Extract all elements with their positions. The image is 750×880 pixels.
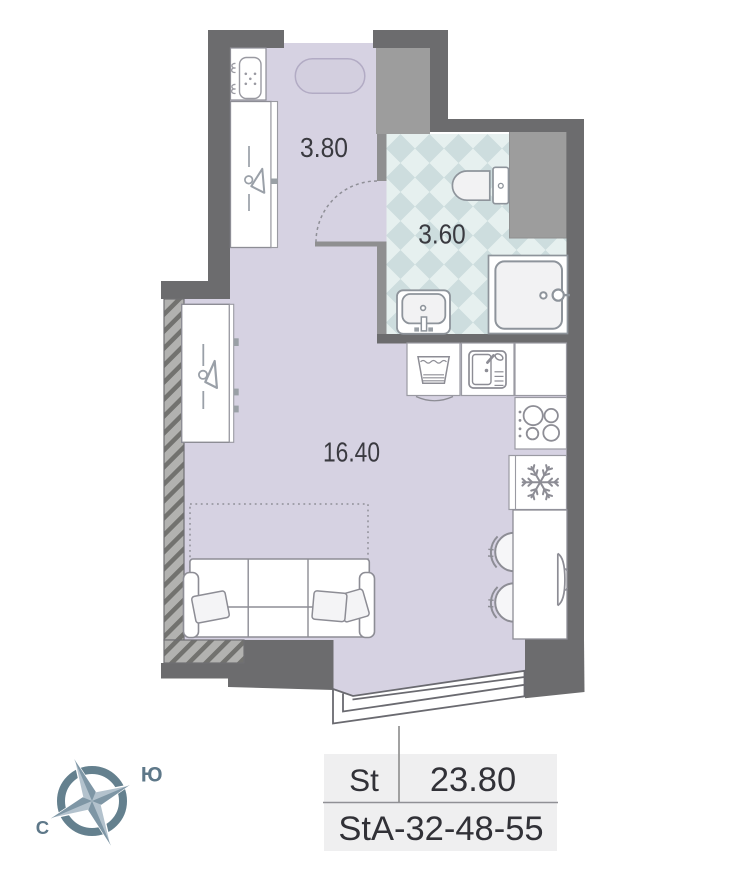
svg-text:3.80: 3.80	[300, 132, 348, 163]
svg-text:StA-32-48-55: StA-32-48-55	[338, 810, 543, 848]
svg-text:16.40: 16.40	[323, 437, 380, 468]
svg-text:С: С	[36, 817, 49, 838]
svg-text:3.60: 3.60	[418, 219, 466, 250]
svg-text:23.80: 23.80	[430, 761, 516, 799]
svg-text:Ю: Ю	[141, 764, 163, 787]
svg-text:St: St	[349, 762, 379, 798]
